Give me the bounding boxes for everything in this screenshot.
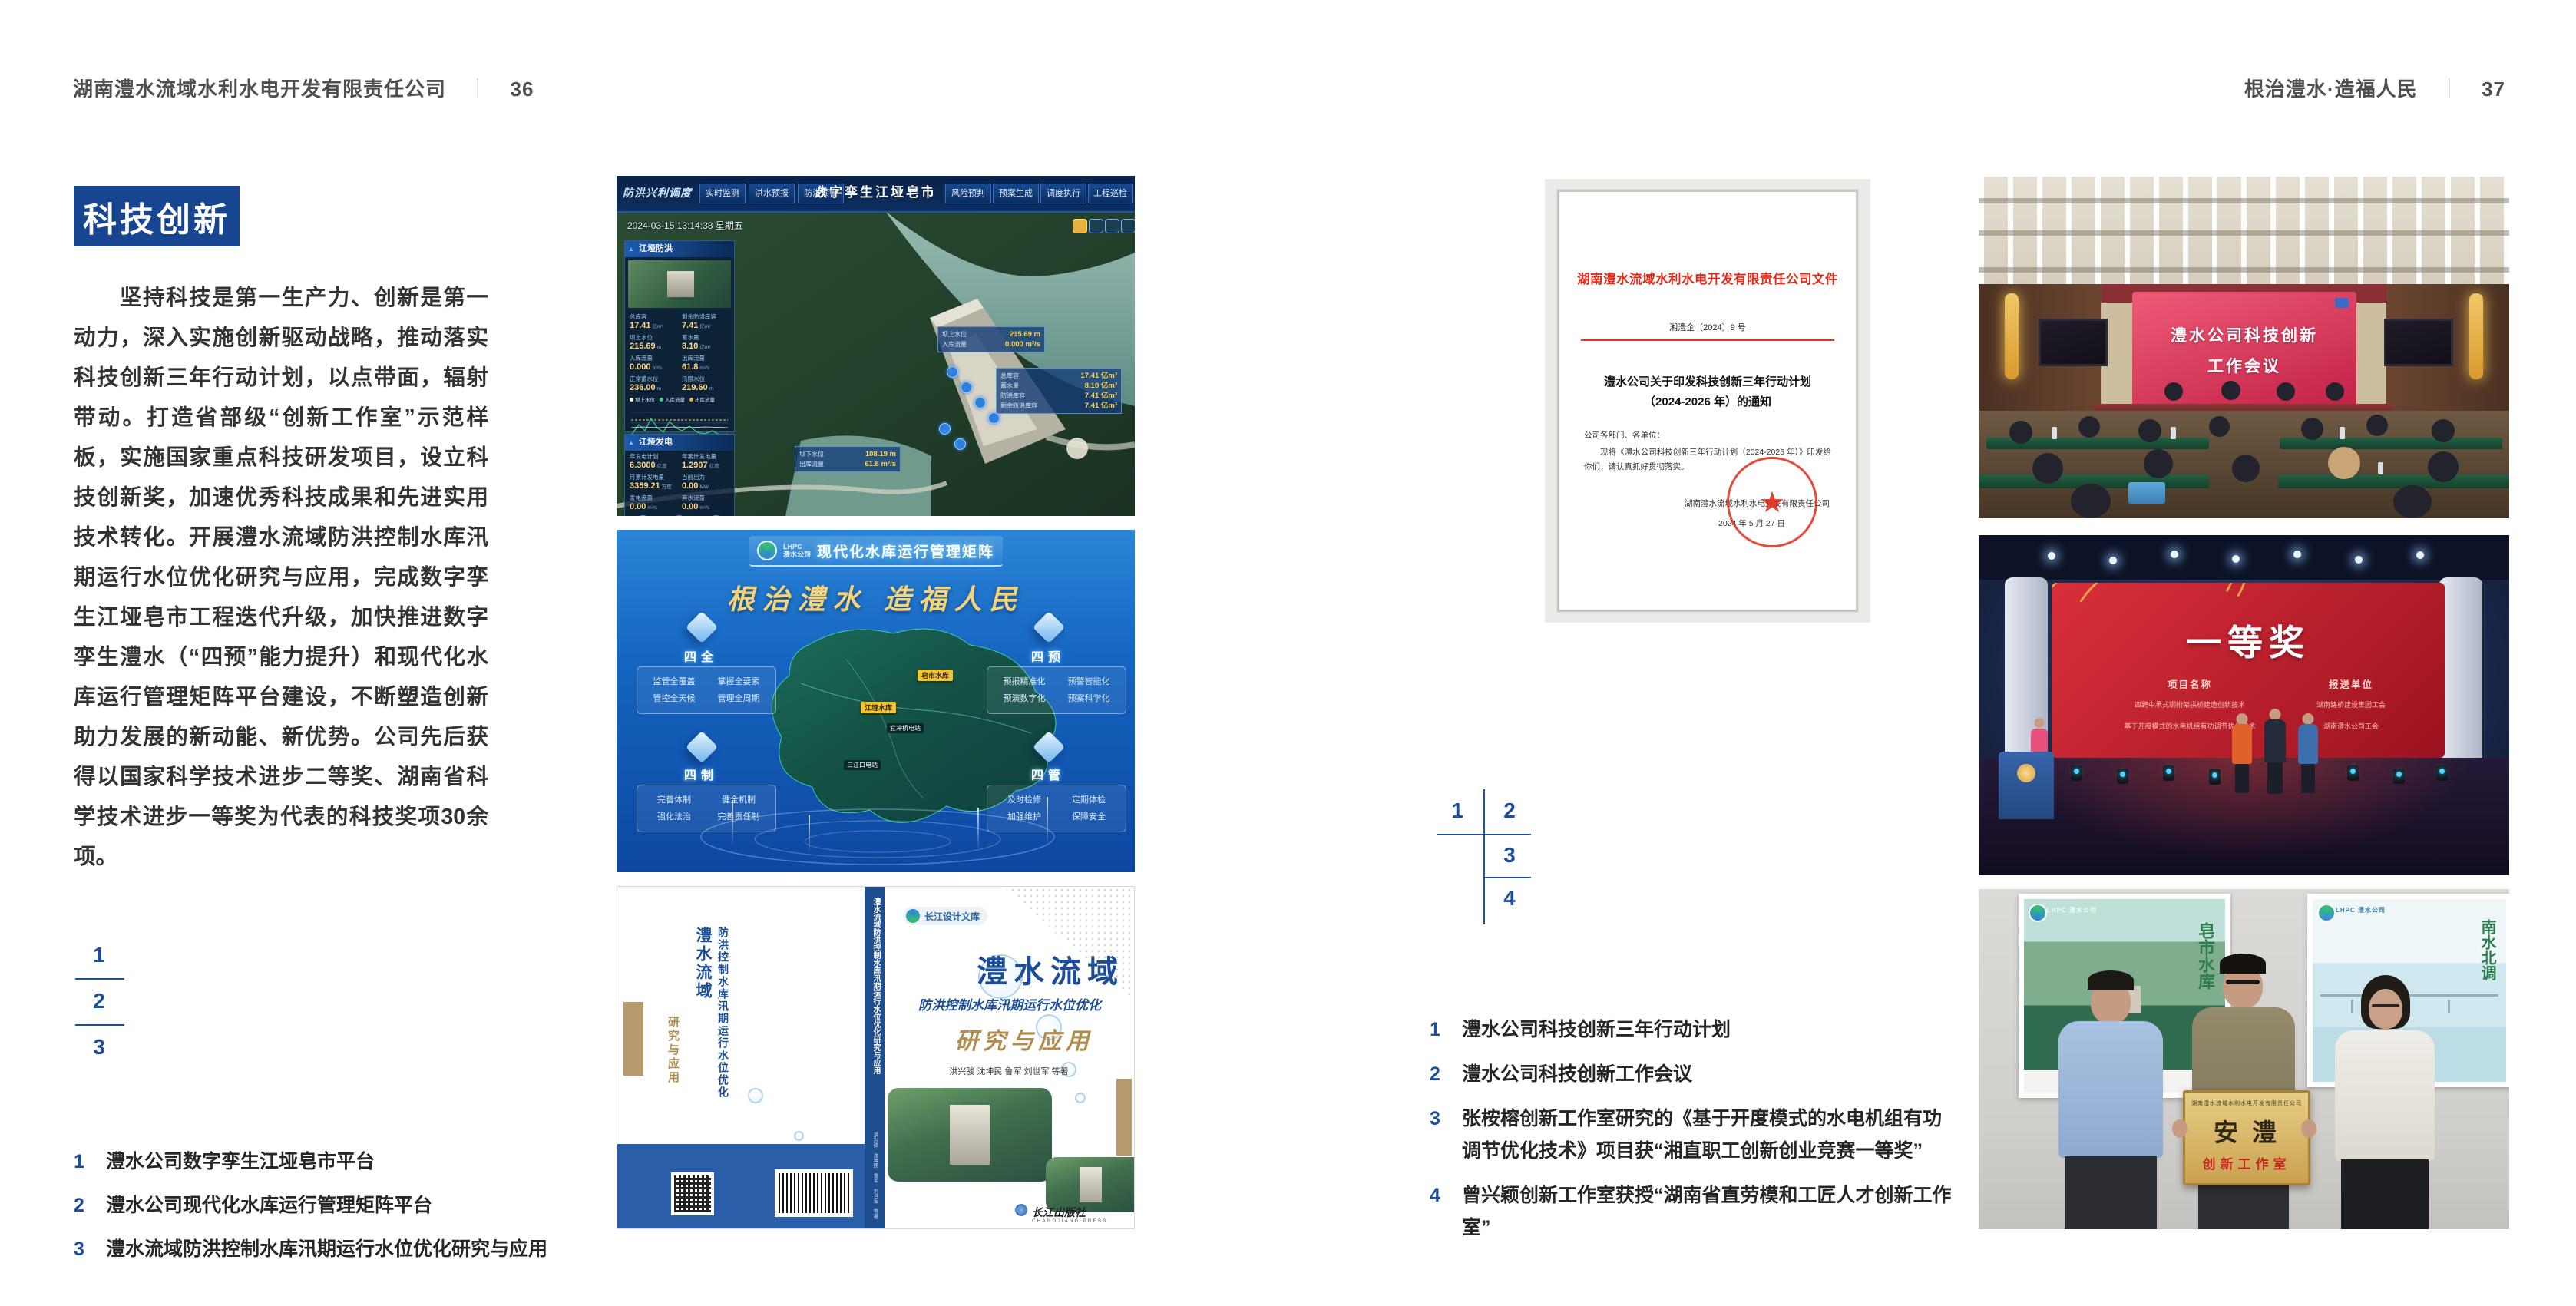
caption-text: 澧水公司科技创新工作会议: [1462, 1058, 1952, 1090]
stat-label: 弃水流量: [682, 494, 729, 502]
poster-logo-text: LHPC 澧水公司: [2047, 906, 2097, 914]
barcode: [775, 1169, 853, 1217]
caption: 4 曾兴颖创新工作室获授“湖南省直劳模和工匠人才创新工作室”: [1430, 1179, 1952, 1244]
module-title: 四管: [1002, 765, 1094, 783]
book-spine: 澧水流域防洪控制水库汛期运行水位优化研究与应用 洪兴骏 沈坤民 鲁军 刘世军 等…: [865, 887, 885, 1229]
stat-label: 出库流量: [682, 354, 729, 362]
dashboard-tab: 工程巡检: [1088, 184, 1133, 203]
presenter-suit: [2264, 709, 2286, 795]
caption: 2 澧水公司现代化水库运行管理矩阵平台: [74, 1189, 550, 1222]
flood-panel: 江垭防洪 总库容17.41亿m³ 剩余防洪库容7.41亿m³ 坝上水位215.6…: [624, 240, 735, 432]
stat-unit: m³/s: [653, 365, 663, 371]
stat-value: 0.000: [630, 362, 651, 372]
chart-legend: 坝上水位 入库流量 出库流量: [625, 394, 734, 405]
stat-unit: 亿度: [709, 464, 719, 469]
spotlight-icon: [2416, 551, 2424, 559]
awardee-blue: [2298, 713, 2318, 794]
module-item: 定期体检: [1057, 792, 1121, 808]
person-pants-black: [2341, 1159, 2429, 1229]
caption: 3 澧水流域防洪控制水库汛期运行水位优化研究与应用: [74, 1233, 580, 1265]
power-panel: 江垭发电 年发电计划6.3000亿度 年累计发电量1.2907亿度 月累计发电量…: [624, 434, 735, 516]
caption: 3 张桉榕创新工作室研究的《基于开度模式的水电机组有功调节优化技术》项目获“湘直…: [1430, 1103, 1952, 1167]
stat-label: 坝上水位: [630, 333, 677, 342]
stage-pillar: [2439, 577, 2482, 765]
index-hline: [1483, 877, 1531, 878]
stat-unit: m³/s: [699, 365, 709, 371]
module-item: 管控全天候: [642, 690, 706, 707]
award-col2-header: 报送单位: [2267, 676, 2435, 691]
figure-index-3: 3: [75, 1035, 123, 1060]
stat-unit: m: [657, 386, 661, 392]
stat-label: 剩余防洪库容: [682, 312, 729, 321]
stat-value: 215.69: [630, 342, 656, 351]
plaque-org: 湖南澧水流域水利水电开发有限责任公司: [2185, 1099, 2308, 1107]
screen-logo-icon: [2335, 298, 2349, 308]
stat-unit: m³/s: [699, 505, 709, 511]
spotlight-icon: [2109, 557, 2117, 564]
stat-label: 年发电计划: [630, 452, 677, 461]
award-project: 四跨中承式钢桁架拱桥建造创新技术: [2098, 699, 2282, 709]
document-salutation: 公司各部门、各单位：: [1584, 428, 1831, 443]
dashboard-datetime: 2024-03-15 13:14:38 星期五: [627, 219, 743, 232]
module-item: 预演数字化: [992, 690, 1057, 707]
front-title-sub: 防洪控制水库汛期运行水位优化: [891, 994, 1129, 1013]
publisher-en: CHANGJIANG PRESS: [1032, 1218, 1107, 1224]
body-paragraph: 坚持科技是第一生产力、创新是第一动力，深入实施创新驱动战略，推动落实科技创新三年…: [74, 278, 488, 877]
audience-silhouette: [2009, 421, 2032, 444]
stat-value: 7.41: [682, 321, 698, 330]
audience-silhouette: [2428, 451, 2459, 482]
company-name: 湖南澧水流域水利水电开发有限责任公司: [73, 78, 446, 101]
water-bottle: [2378, 462, 2383, 474]
audience-silhouette: [2144, 449, 2173, 478]
audience-silhouette: [2393, 485, 2432, 518]
stage-light: [2393, 769, 2405, 784]
figure-index-3: 3: [1493, 843, 1526, 868]
audience-silhouette: [2078, 416, 2100, 438]
index-divider: [75, 1024, 124, 1026]
bubble-art: [794, 1131, 804, 1141]
back-title-main: 澧水流域: [691, 927, 714, 1000]
person-trousers: [2065, 1156, 2157, 1229]
caption-number: 4: [1430, 1179, 1462, 1244]
figure-dashboard-screenshot: 防洪兴利调度 实时监测 洪水预报 防洪预警 数字孪生江垭皂市 风险预判 预案生成…: [617, 176, 1135, 516]
dashboard-brand: 防洪兴利调度: [623, 185, 692, 200]
spotlight-icon: [2048, 552, 2055, 560]
stat-label: 蓄水量: [682, 333, 729, 342]
dashboard-tab: 洪水预报: [749, 184, 795, 203]
stat-value: 236.00: [630, 383, 656, 392]
module-panel: 完善体制 健全机制 强化法治 完善责任制: [637, 785, 776, 832]
official-seal: ★: [1727, 457, 1817, 547]
stat-label: 发电流量: [630, 494, 677, 502]
stat-label: 月累计发电量: [630, 473, 677, 481]
audience-silhouette: [2209, 416, 2230, 437]
panelist-silhouette: [2277, 382, 2295, 401]
section-title: 科技创新: [74, 186, 240, 246]
audience-table: [2278, 474, 2509, 488]
map-pin: [988, 412, 1000, 424]
stat-unit: 万度: [662, 484, 672, 490]
award-unit: 湖南路桥建设集团工会: [2259, 699, 2443, 709]
light-pillar: [977, 808, 979, 850]
downstream-tag: 坝下水位108.19 m 出库流量61.8 m³/s: [795, 446, 901, 472]
dashboard-tab: 预案生成: [993, 184, 1039, 203]
caption-number: 3: [1430, 1103, 1462, 1167]
front-title-main: 澧水流域: [924, 947, 1124, 991]
photo-meeting: 澧水公司科技创新 工作会议: [1979, 177, 2509, 518]
front-accent-block: [1116, 1079, 1132, 1156]
photo-group-plaque: LHPC 澧水公司 皂市水库 LHPC 澧水公司 南水北调: [1979, 889, 2509, 1229]
person-face: [2369, 989, 2402, 1029]
caption-text: 澧水公司科技创新三年行动计划: [1462, 1013, 1952, 1046]
power-stats: 年发电计划6.3000亿度 年累计发电量1.2907亿度 月累计发电量3359.…: [625, 451, 734, 513]
light-pillar: [1047, 797, 1048, 846]
flood-panel-title: 江垭防洪: [625, 241, 734, 257]
stat-unit: m: [657, 345, 661, 350]
stat-value: 61.8: [682, 362, 698, 372]
stage-light: [2071, 765, 2082, 781]
module-item: 健全机制: [706, 792, 771, 808]
lhpc-logo-icon: [2029, 904, 2047, 922]
module-panel: 预报精准化 预警智能化 预演数字化 预案科学化: [987, 666, 1126, 714]
stat-value: 3359.21: [630, 481, 660, 491]
panelist-silhouette: [2164, 382, 2183, 401]
header-right: 根治澧水·造福人民 ｜ 37: [2244, 74, 2505, 102]
wall-tv: [2384, 319, 2453, 366]
upstream-tag: 坝上水位215.69 m 入库流量0.000 m³/s: [937, 326, 1045, 352]
back-title-sub: 防洪控制水库汛期运行水位优化: [716, 927, 731, 1126]
stat-value: 6.3000: [630, 461, 656, 470]
figure-index-2: 2: [1493, 798, 1526, 823]
stat-unit: MW: [699, 484, 709, 490]
map-pin: [954, 438, 966, 450]
photo-award-ceremony: 一等奖 项目名称 报送单位 四跨中承式钢桁架拱桥建造创新技术 基于开度模式的水电…: [1979, 535, 2509, 875]
module-item: 强化法治: [642, 808, 706, 825]
poster-calligraphy: 南水北调: [2476, 919, 2498, 1034]
module-item: 保障安全: [1057, 808, 1121, 825]
module-panel: 及时检修 定期体检 加强维护 保障安全: [987, 785, 1126, 832]
water-bottle: [2340, 427, 2345, 439]
wall-lamp-icon: [2005, 293, 2019, 379]
screen-title-line1: 澧水公司科技创新: [2171, 323, 2318, 346]
lhpc-logo-icon: [2317, 904, 2336, 922]
host-podium: [1999, 752, 2054, 819]
stat-value: 8.10: [682, 342, 698, 351]
seal-star-icon: ★: [1759, 485, 1785, 520]
award-unit: 湖南澧水公司工会: [2259, 721, 2443, 731]
module-item: 预报精准化: [992, 673, 1057, 690]
publisher-name: 长江出版社: [1032, 1205, 1086, 1220]
stage-light: [2347, 765, 2359, 781]
locate-icon: [1105, 219, 1119, 233]
module-item: 掌握全要素: [706, 673, 771, 690]
layers-icon: [1089, 219, 1103, 233]
qr-code: [671, 1172, 714, 1215]
person-hair: [2088, 970, 2134, 990]
authors-line: 洪兴骏 沈坤民 鲁军 刘世军 等著: [909, 1065, 1109, 1077]
module-item: 预警智能化: [1057, 673, 1121, 690]
dam-thumbnail: [628, 260, 731, 308]
map-pin: [961, 382, 972, 393]
figure-platform-screenshot: LHPC澧水公司 现代化水库运行管理矩阵 根治澧水 造福人民 皂市水库 江垭水库…: [617, 530, 1135, 872]
audience-silhouette: [2071, 484, 2111, 518]
spotlight-icon: [2171, 551, 2178, 558]
header-divider: ｜: [2439, 78, 2460, 101]
audience-silhouette: [2138, 419, 2161, 442]
module-item: 完善体制: [642, 792, 706, 808]
screen-title-line2: 工作会议: [2207, 354, 2281, 377]
audience-silhouette: [2366, 415, 2388, 436]
figure-index-1: 1: [1440, 798, 1474, 823]
figure-index-1: 1: [75, 943, 123, 967]
stat-label: 总库容: [630, 312, 677, 321]
module-item: 管理全周期: [706, 690, 771, 707]
plaque-title: 安澧: [2196, 1113, 2308, 1149]
document-title-line1: 澧水公司关于印发科技创新三年行动计划: [1559, 373, 1856, 389]
page-number-left: 36: [511, 78, 534, 101]
index-vline: [1483, 789, 1485, 924]
stage-light: [2163, 765, 2174, 781]
map-pin: [947, 366, 958, 378]
wall-tv: [2039, 319, 2108, 366]
award-headline: 一等奖: [2052, 615, 2445, 666]
audience-silhouette: [2432, 419, 2455, 442]
stat-unit: 亿度: [657, 464, 667, 469]
stat-unit: m³/s: [647, 505, 657, 511]
publisher-logo-icon: [1015, 1204, 1027, 1216]
caption: 2 澧水公司科技创新工作会议: [1430, 1058, 1952, 1090]
module-item: 完善责任制: [706, 808, 771, 825]
slogan: 根治澧水·造福人民: [2244, 78, 2418, 101]
back-title-tail: 研究与应用: [665, 1016, 681, 1085]
stat-value: 219.60: [682, 383, 708, 392]
power-gauges: 0.00 100.98 0.00: [625, 513, 734, 516]
figure-index-2: 2: [75, 989, 123, 1013]
stat-unit: 亿m³: [699, 345, 710, 350]
module-title: 四预: [1002, 646, 1094, 665]
reservoir-tag: 总库容17.41 亿m³ 蓄水量8.10 亿m³ 防洪库容7.41 亿m³ 剩余…: [996, 368, 1122, 414]
series-logo-icon: [906, 909, 920, 923]
person-shirt-white: [2335, 1030, 2435, 1161]
caption: 1 澧水公司数字孪生江垭皂市平台: [74, 1146, 550, 1178]
stage-truss: [1979, 535, 2509, 580]
caption-text: 澧水公司现代化水库运行管理矩阵平台: [106, 1189, 550, 1222]
stage-light: [2209, 769, 2221, 785]
stage-light: [2117, 769, 2128, 784]
water-bottle: [2171, 427, 2176, 439]
module-item: 预案科学化: [1057, 690, 1121, 707]
map-pin: [974, 397, 986, 408]
dashboard-tab: 风险预判: [945, 184, 991, 203]
dashboard-title: 数字孪生江垭皂市: [812, 179, 939, 207]
red-rule: [1581, 339, 1834, 341]
dam-photo-large: [888, 1088, 1052, 1182]
caption-text: 曾兴颖创新工作室获授“湖南省直劳模和工匠人才创新工作室”: [1462, 1179, 1952, 1244]
settings-icon: [1121, 219, 1135, 233]
plaque-subtitle: 创新工作室: [2185, 1153, 2308, 1172]
hand: [2301, 1119, 2316, 1138]
hand: [2172, 1119, 2187, 1138]
spine-title: 澧水流域防洪控制水库汛期运行水位优化研究与应用: [870, 898, 881, 1128]
stat-value: 1.2907: [682, 461, 708, 470]
audience-silhouette: [2032, 453, 2063, 484]
spotlight-icon: [2293, 551, 2301, 558]
module-title: 四制: [655, 765, 747, 783]
index-divider: [75, 978, 124, 980]
stat-unit: 亿m³: [653, 324, 663, 329]
header-divider: ｜: [468, 78, 488, 101]
person-shirt-blue: [2058, 1021, 2163, 1158]
module-panel: 监管全覆盖 掌握全要素 管控全天候 管理全周期: [637, 666, 776, 714]
series-chip: 长江设计文库: [903, 907, 987, 925]
poster-logo-text: LHPC 澧水公司: [2336, 906, 2386, 914]
stat-value: 0.00: [682, 502, 698, 511]
wall-lamp-icon: [2469, 293, 2483, 379]
index-hline: [1437, 834, 1531, 835]
magazine-spread: 湖南澧水流域水利水电开发有限责任公司 ｜ 36 根治澧水·造福人民 ｜ 37 科…: [0, 0, 2576, 1306]
spine-authors: 洪兴骏 沈坤民 鲁军 刘世军 等著: [871, 1132, 878, 1225]
water-bottle: [2052, 427, 2057, 439]
map-label-jiangya: 江垭水库: [861, 702, 896, 713]
back-accent-block: [623, 1002, 643, 1076]
caption-number: 1: [74, 1146, 106, 1178]
caption-number: 3: [74, 1233, 106, 1265]
map-label-zaoshi: 皂市水库: [918, 670, 953, 681]
caption-number: 1: [1430, 1013, 1462, 1046]
document-number: 湘澧企〔2024〕9 号: [1559, 321, 1856, 333]
bubble-art: [748, 1088, 763, 1103]
light-pillar: [809, 815, 810, 852]
module-title: 四全: [655, 646, 747, 665]
glasses-icon: [2226, 980, 2260, 984]
caption-text: 澧水流域防洪控制水库汛期运行水位优化研究与应用: [106, 1233, 580, 1265]
glasses-icon: [2372, 1004, 2399, 1007]
stage-light: [2436, 765, 2448, 781]
award-project: 基于开度模式的水电机组有功调节优化技术: [2098, 721, 2282, 731]
award-col1-header: 项目名称: [2105, 676, 2274, 691]
power-panel-title: 江垭发电: [625, 435, 734, 451]
caption-text: 澧水公司数字孪生江垭皂市平台: [106, 1146, 550, 1178]
dashboard-tab: 调度执行: [1040, 184, 1086, 203]
stat-label: 正常蓄水位: [630, 375, 677, 383]
map-label-sanjiangkou: 三江口电站: [844, 760, 881, 770]
document-page: 湖南澧水流域水利水电开发有限责任公司文件 湘澧企〔2024〕9 号 澧水公司关于…: [1557, 190, 1858, 612]
caption-number: 2: [74, 1189, 106, 1222]
stat-label: 年累计发电量: [682, 452, 729, 461]
stat-value: 0.00: [630, 502, 646, 511]
user-icon: [1073, 219, 1087, 233]
page-number-right: 37: [2482, 78, 2505, 101]
tissue-box: [2128, 482, 2165, 504]
document-title-line2: （2024-2026 年）的通知: [1559, 393, 1856, 409]
audience-silhouette: [2232, 455, 2260, 482]
series-name: 长江设计文库: [924, 910, 980, 923]
flood-stats: 总库容17.41亿m³ 剩余防洪库容7.41亿m³ 坝上水位215.69m 蓄水…: [625, 311, 734, 394]
innovation-studio-plaque: 湖南澧水流域水利水电开发有限责任公司 安澧 创新工作室: [2183, 1090, 2310, 1185]
document-header: 湖南澧水流域水利水电开发有限责任公司文件: [1559, 269, 1856, 287]
stat-unit: 亿m³: [699, 324, 710, 329]
person-hair: [2220, 954, 2266, 974]
map-label-yichongqiao: 宜冲桥电站: [887, 723, 924, 733]
header-left: 湖南澧水流域水利水电开发有限责任公司 ｜ 36: [73, 74, 534, 102]
panelist-silhouette: [2326, 382, 2344, 401]
caption-text: 张桉榕创新工作室研究的《基于开度模式的水电机组有功调节优化技术》项目获“湘直职工…: [1462, 1103, 1952, 1167]
module-item: 监管全覆盖: [642, 673, 706, 690]
light-pillar: [732, 800, 733, 846]
stat-value: 0.00: [682, 481, 698, 491]
audience-silhouette: [2328, 447, 2360, 479]
caption: 1 澧水公司科技创新三年行动计划: [1430, 1013, 1952, 1046]
caption-number: 2: [1430, 1058, 1462, 1090]
awardee-orange: [2232, 713, 2252, 794]
figure-official-document: 湖南澧水流域水利水电开发有限责任公司文件 湘澧企〔2024〕9 号 澧水公司关于…: [1545, 179, 1870, 623]
audience-silhouette: [2301, 418, 2323, 440]
stat-value: 17.41: [630, 321, 651, 330]
spotlight-icon: [2232, 555, 2240, 563]
stat-label: 汛限水位: [682, 375, 729, 383]
figure-index-4: 4: [1493, 886, 1526, 911]
dashboard-tab: 实时监测: [699, 184, 746, 203]
stat-unit: m: [709, 386, 713, 392]
figure-book-cover: 澧水流域 防洪控制水库汛期运行水位优化 研究与应用 澧水流域防洪控制水库汛期运行…: [617, 886, 1135, 1229]
spotlight-icon: [2355, 556, 2363, 564]
bubble-art: [1075, 1093, 1086, 1103]
dashboard-top-bar: 防洪兴利调度 实时监测 洪水预报 防洪预警 数字孪生江垭皂市 风险预判 预案生成…: [617, 176, 1135, 213]
stat-label: 入库流量: [630, 354, 677, 362]
front-title-tail: 研究与应用: [924, 1022, 1124, 1056]
map-pin: [939, 423, 951, 435]
panelist-silhouette: [2221, 381, 2240, 400]
stat-label: 当前出力: [682, 473, 729, 481]
